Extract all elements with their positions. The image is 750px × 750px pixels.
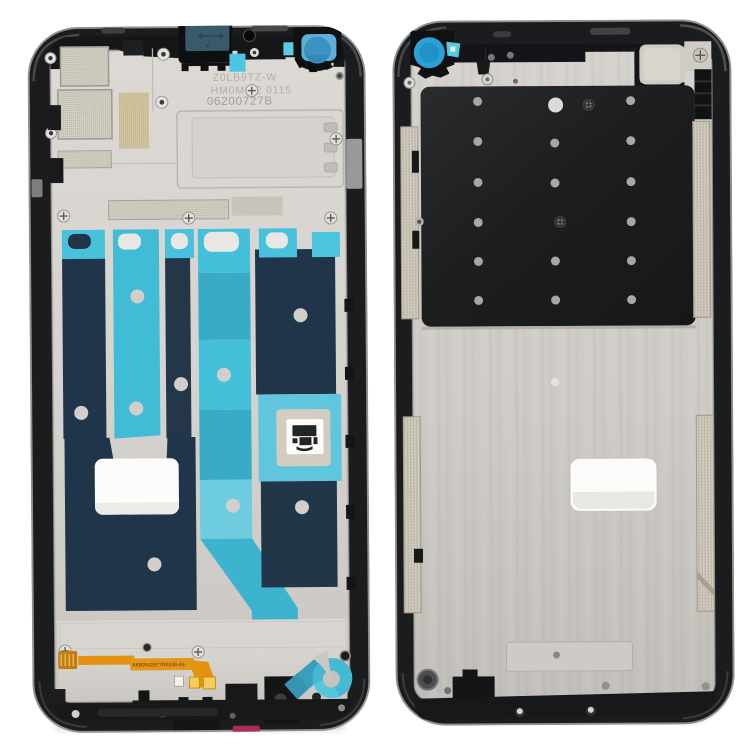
svg-text:AKB2b02977RA338-4B: AKB2b02977RA338-4B — [132, 662, 185, 668]
svg-text:Z0LB9TZ-W: Z0LB9TZ-W — [213, 71, 277, 84]
svg-text:06200727B: 06200727B — [207, 95, 273, 108]
